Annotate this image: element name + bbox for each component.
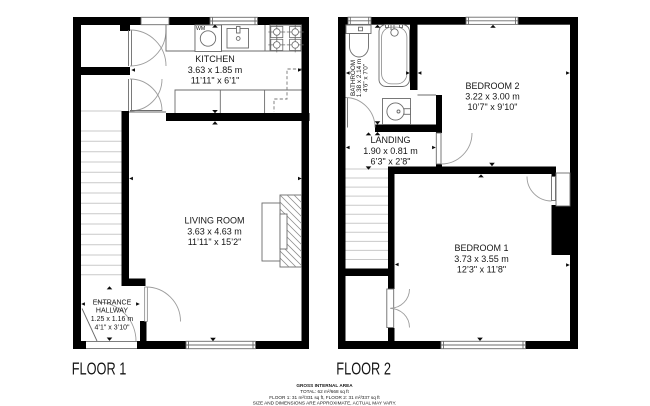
svg-text:LIVING ROOM: LIVING ROOM bbox=[184, 216, 244, 226]
svg-text:4’6" x 7’0": 4’6" x 7’0" bbox=[363, 64, 370, 92]
svg-text:6’3" x 2’8": 6’3" x 2’8" bbox=[371, 157, 411, 167]
svg-text:ENTRANCE: ENTRANCE bbox=[93, 299, 132, 306]
svg-text:FLOOR 1: 31 m²/331 sq ft, FLOO: FLOOR 1: 31 m²/331 sq ft, FLOOR 2: 31 m²… bbox=[269, 395, 380, 400]
svg-text:3.73 x 3.55 m: 3.73 x 3.55 m bbox=[454, 254, 509, 264]
svg-text:3.63 x 4.63 m: 3.63 x 4.63 m bbox=[187, 226, 242, 236]
svg-text:TOTAL: 62 m²/668 sq ft: TOTAL: 62 m²/668 sq ft bbox=[300, 389, 349, 394]
svg-text:12’3" x 11’8": 12’3" x 11’8" bbox=[457, 265, 506, 275]
svg-text:3.22 x 3.00 m: 3.22 x 3.00 m bbox=[465, 92, 520, 102]
svg-text:GROSS INTERNAL AREA: GROSS INTERNAL AREA bbox=[296, 383, 353, 388]
svg-text:4’1" x 3’10": 4’1" x 3’10" bbox=[95, 325, 130, 332]
svg-text:BEDROOM 2: BEDROOM 2 bbox=[465, 81, 519, 91]
svg-text:11’11" x 15’2": 11’11" x 15’2" bbox=[188, 237, 242, 247]
svg-text:FLOOR 2: FLOOR 2 bbox=[336, 360, 391, 379]
svg-text:10’7" x 9’10": 10’7" x 9’10" bbox=[468, 102, 518, 112]
svg-text:HALLWAY: HALLWAY bbox=[96, 308, 128, 315]
svg-text:WM: WM bbox=[196, 26, 205, 32]
svg-text:1.90 x 0.81 m: 1.90 x 0.81 m bbox=[363, 146, 418, 156]
svg-text:FLOOR 1: FLOOR 1 bbox=[72, 360, 127, 379]
svg-text:LANDING: LANDING bbox=[370, 135, 410, 145]
svg-text:KITCHEN: KITCHEN bbox=[195, 54, 235, 64]
svg-text:11’11" x 6’1": 11’11" x 6’1" bbox=[191, 76, 240, 86]
svg-text:1.25 x 1.16 m: 1.25 x 1.16 m bbox=[91, 316, 134, 323]
svg-text:SIZE AND DIMENSIONS ARE APPROX: SIZE AND DIMENSIONS ARE APPROXIMATE, ACT… bbox=[253, 401, 397, 406]
svg-text:BEDROOM 1: BEDROOM 1 bbox=[454, 243, 508, 253]
svg-text:3.63 x 1.85 m: 3.63 x 1.85 m bbox=[188, 65, 243, 75]
